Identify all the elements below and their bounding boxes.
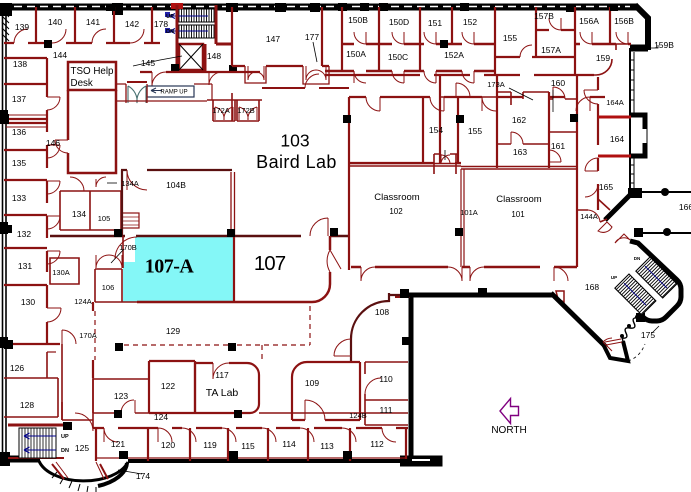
svg-text:144: 144 (53, 50, 67, 60)
svg-text:130A: 130A (52, 268, 70, 277)
svg-text:117: 117 (215, 370, 229, 380)
svg-text:115: 115 (241, 441, 255, 451)
svg-text:150B: 150B (348, 15, 368, 25)
svg-text:101A: 101A (460, 208, 478, 217)
svg-text:134A: 134A (121, 179, 139, 188)
svg-text:150C: 150C (388, 52, 408, 62)
svg-text:109: 109 (305, 378, 319, 388)
svg-text:172B: 172B (237, 106, 255, 115)
svg-text:164A: 164A (606, 98, 624, 107)
svg-text:150A: 150A (346, 49, 366, 59)
svg-text:TSO Help: TSO Help (71, 66, 115, 77)
svg-text:162: 162 (512, 115, 526, 125)
svg-text:148: 148 (207, 51, 221, 61)
svg-text:137: 137 (12, 94, 26, 104)
svg-text:140: 140 (48, 17, 62, 27)
svg-text:145: 145 (141, 58, 155, 68)
svg-text:146: 146 (46, 138, 60, 148)
svg-text:UP: UP (61, 434, 69, 440)
svg-text:DN: DN (166, 29, 174, 35)
svg-text:114: 114 (282, 439, 296, 449)
svg-text:108: 108 (375, 307, 389, 317)
svg-text:107-A: 107-A (145, 256, 195, 278)
svg-text:TA Lab: TA Lab (206, 387, 239, 399)
svg-text:170A: 170A (79, 331, 97, 340)
svg-text:144A: 144A (580, 212, 598, 221)
svg-text:DN: DN (61, 448, 69, 454)
svg-text:129: 129 (166, 326, 180, 336)
svg-text:134: 134 (72, 209, 86, 219)
svg-text:123: 123 (114, 391, 128, 401)
svg-text:150D: 150D (389, 17, 409, 27)
svg-text:104B: 104B (166, 180, 186, 190)
svg-text:Baird Lab: Baird Lab (256, 152, 337, 172)
svg-text:172A: 172A (212, 106, 230, 115)
svg-text:133: 133 (12, 193, 26, 203)
svg-text:178: 178 (154, 19, 168, 29)
svg-text:156B: 156B (614, 16, 634, 26)
svg-text:157A: 157A (541, 45, 561, 55)
svg-text:125: 125 (75, 443, 89, 453)
svg-text:DN: DN (634, 256, 641, 261)
svg-text:121: 121 (111, 439, 125, 449)
svg-text:164: 164 (610, 134, 624, 144)
svg-text:139: 139 (15, 22, 29, 32)
svg-text:124A: 124A (74, 297, 92, 306)
svg-text:128: 128 (20, 400, 34, 410)
svg-text:Desk: Desk (71, 78, 93, 89)
svg-text:107: 107 (254, 252, 286, 275)
svg-text:111: 111 (380, 405, 393, 415)
svg-text:UP: UP (611, 275, 617, 280)
svg-text:136: 136 (12, 127, 26, 137)
svg-text:113: 113 (320, 441, 334, 451)
svg-text:NORTH: NORTH (491, 425, 526, 436)
svg-text:142: 142 (125, 19, 139, 29)
svg-text:154: 154 (429, 125, 443, 135)
svg-text:151: 151 (428, 18, 442, 28)
svg-text:131: 131 (18, 261, 32, 271)
svg-text:166: 166 (679, 202, 691, 212)
svg-text:159: 159 (596, 53, 610, 63)
svg-text:168: 168 (585, 282, 599, 292)
svg-text:124: 124 (154, 412, 168, 422)
svg-text:173A: 173A (487, 80, 505, 89)
svg-text:165: 165 (599, 182, 613, 192)
svg-text:160: 160 (551, 78, 565, 88)
svg-text:122: 122 (161, 381, 175, 391)
svg-text:105: 105 (98, 214, 111, 223)
svg-text:Classroom: Classroom (374, 192, 419, 203)
svg-text:177: 177 (305, 32, 319, 42)
svg-text:120: 120 (161, 440, 175, 450)
svg-text:161: 161 (551, 141, 565, 151)
svg-text:119: 119 (203, 440, 217, 450)
svg-text:152A: 152A (444, 50, 464, 60)
svg-text:170B: 170B (119, 243, 137, 252)
svg-text:132: 132 (17, 229, 31, 239)
svg-text:159B: 159B (654, 40, 674, 50)
svg-text:155: 155 (503, 33, 517, 43)
svg-text:152: 152 (463, 17, 477, 27)
svg-text:126: 126 (10, 363, 24, 373)
svg-text:110: 110 (379, 374, 393, 384)
svg-text:155: 155 (468, 126, 482, 136)
svg-text:156A: 156A (579, 16, 599, 26)
svg-text:141: 141 (86, 17, 100, 27)
svg-text:106: 106 (102, 283, 115, 292)
svg-text:138: 138 (13, 59, 27, 69)
svg-text:103: 103 (280, 131, 309, 151)
svg-text:UP: UP (166, 14, 174, 20)
svg-text:101: 101 (511, 210, 525, 219)
svg-text:RAMP UP: RAMP UP (160, 90, 187, 96)
svg-text:147: 147 (266, 34, 280, 44)
svg-text:124B: 124B (349, 411, 367, 420)
svg-text:175: 175 (641, 330, 655, 340)
svg-text:Classroom: Classroom (496, 194, 541, 205)
svg-text:135: 135 (12, 158, 26, 168)
svg-text:157B: 157B (534, 11, 554, 21)
svg-text:112: 112 (370, 439, 384, 449)
svg-text:130: 130 (21, 297, 35, 307)
svg-text:102: 102 (389, 207, 403, 216)
svg-text:163: 163 (513, 147, 527, 157)
svg-text:174: 174 (136, 471, 150, 481)
